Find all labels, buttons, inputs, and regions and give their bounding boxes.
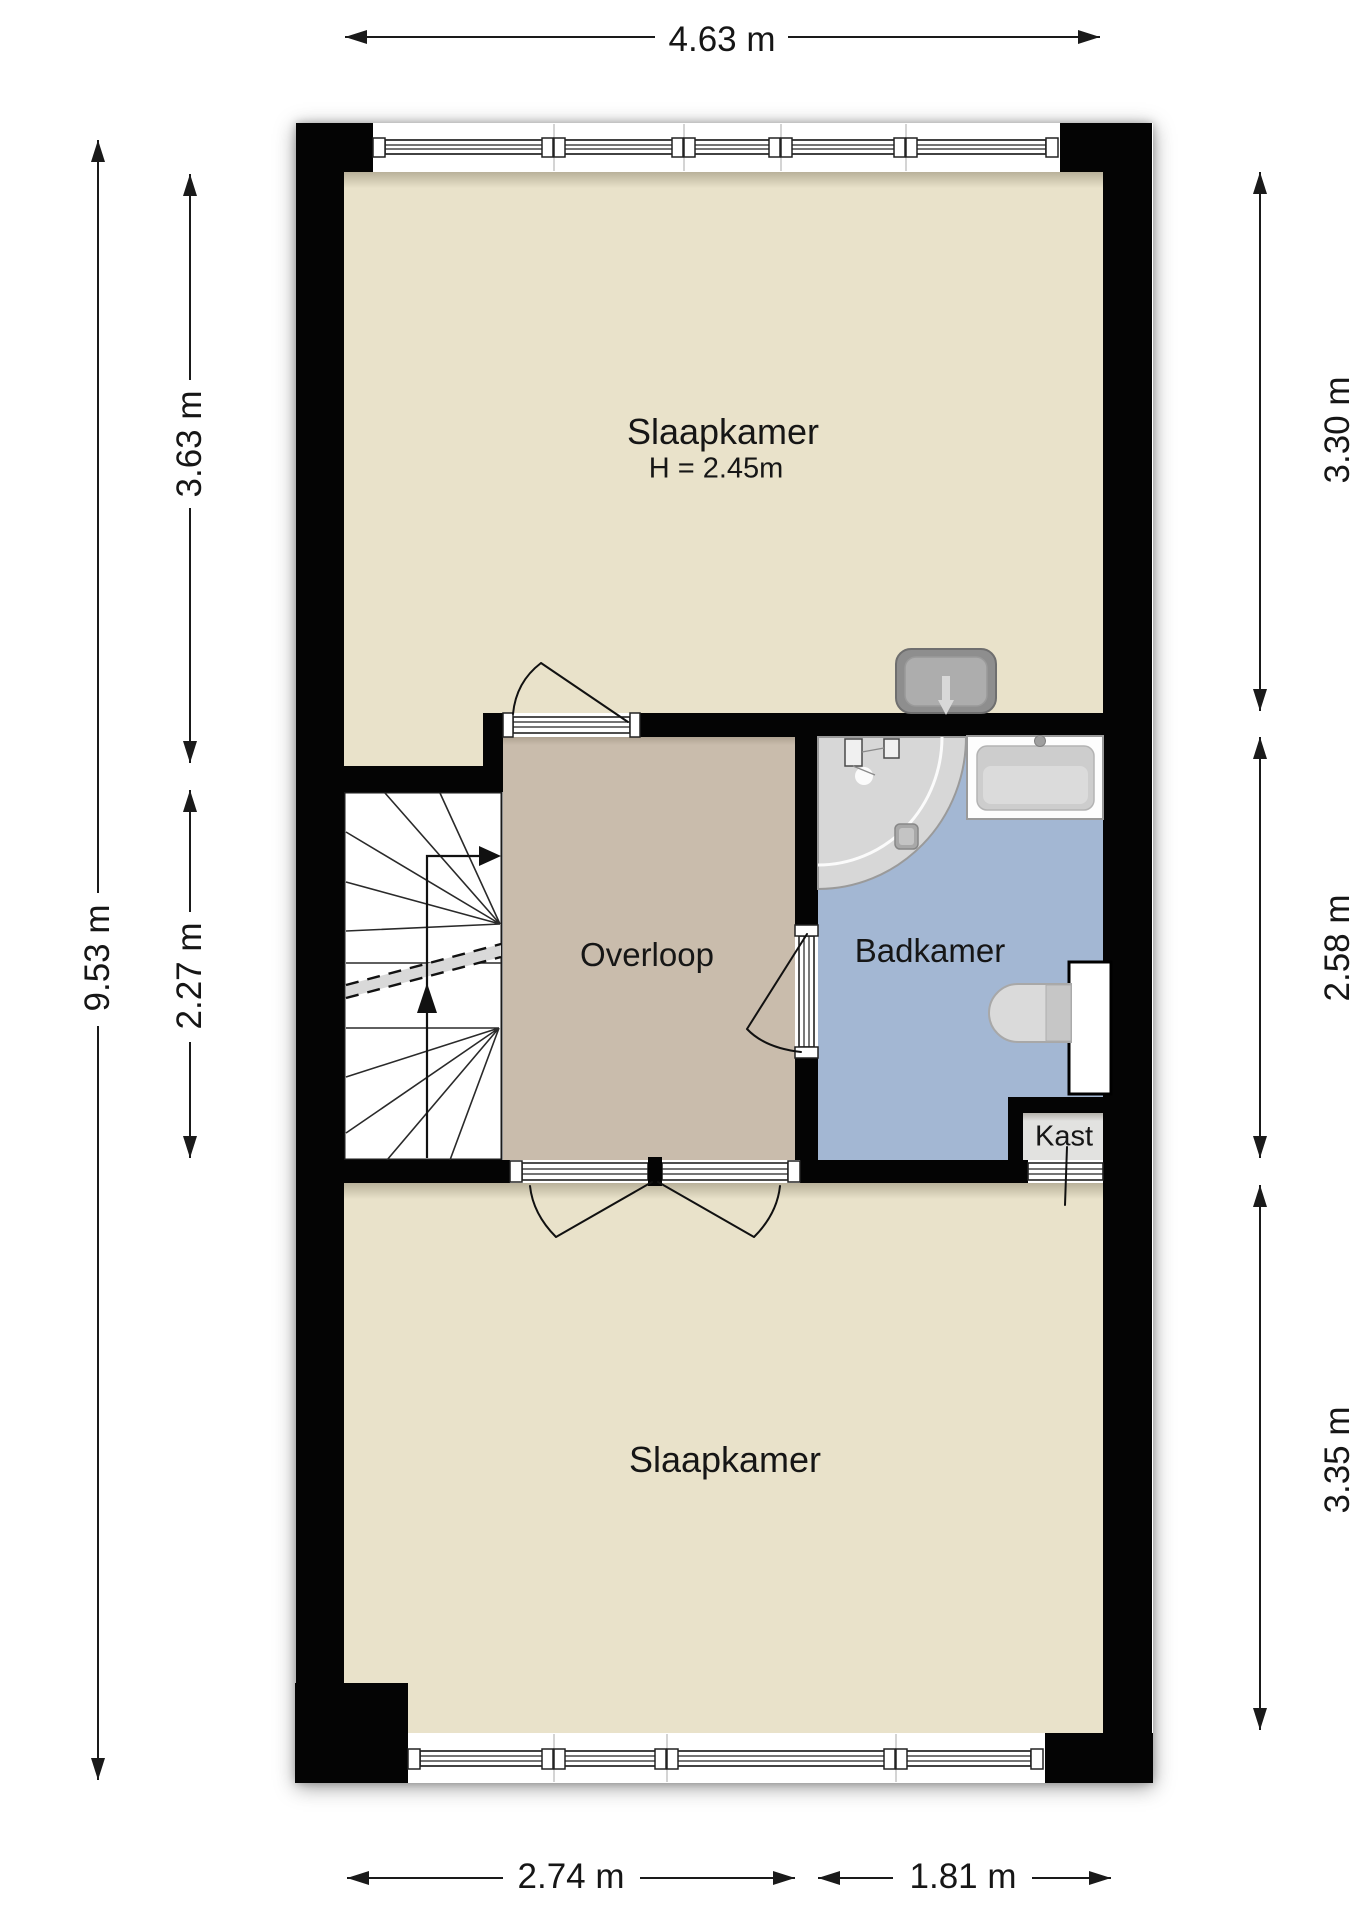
bathtub <box>967 736 1103 820</box>
dimension-label-bottom-right: 1.81 m <box>910 1857 1017 1897</box>
wall-slaapkamer-badkamer <box>640 713 1103 737</box>
wall-top-left-block <box>296 123 373 172</box>
faucet-icon <box>942 676 950 702</box>
dimension-label-left-upper: 3.63 m <box>170 391 210 498</box>
dimension-label-right-middle: 2.58 m <box>1318 895 1358 1002</box>
wall-bottom-right-block <box>1045 1733 1153 1783</box>
wall-jog <box>483 713 503 792</box>
wall-middle-left <box>344 1160 510 1183</box>
shower-mixer-icon <box>845 739 862 766</box>
dimension-label-bottom-left: 2.74 m <box>518 1857 625 1897</box>
wall-overloop-badkamer-upper <box>795 737 818 925</box>
floorplan-page: Slaapkamer H = 2.45m Overloop Badkamer K… <box>0 0 1358 1920</box>
dimension-label-left-total: 9.53 m <box>78 905 118 1012</box>
wall-overloop-badkamer-lower <box>795 1058 818 1160</box>
room-label-slaapkamer-top: Slaapkamer <box>627 411 819 453</box>
room-label-kast: Kast <box>1035 1121 1093 1154</box>
room-label-badkamer: Badkamer <box>855 932 1005 970</box>
room-label-slaapkamer-bottom: Slaapkamer <box>629 1439 821 1481</box>
wall-slaapkamer-stairs <box>344 766 503 792</box>
staircase <box>345 793 502 1161</box>
dimension-label-right-upper: 3.30 m <box>1318 377 1358 484</box>
dimension-label-top-width: 4.63 m <box>669 20 776 60</box>
wall-left <box>296 123 344 1783</box>
room-label-overloop: Overloop <box>580 936 714 974</box>
room-height-note: H = 2.45m <box>649 453 784 486</box>
wall-bottom-left-block <box>295 1683 408 1783</box>
floor-shadow <box>344 1183 1103 1199</box>
dimension-label-right-lower: 3.35 m <box>1318 1407 1358 1514</box>
washbasin <box>896 649 996 715</box>
bathtub-faucet-icon <box>1035 736 1046 747</box>
wall-top-right-block <box>1060 123 1152 172</box>
wall-kast-left <box>1008 1097 1023 1160</box>
wall-middle-right <box>800 1160 1028 1183</box>
floor-shadow <box>344 172 1103 188</box>
dimension-label-left-middle: 2.27 m <box>170 923 210 1030</box>
